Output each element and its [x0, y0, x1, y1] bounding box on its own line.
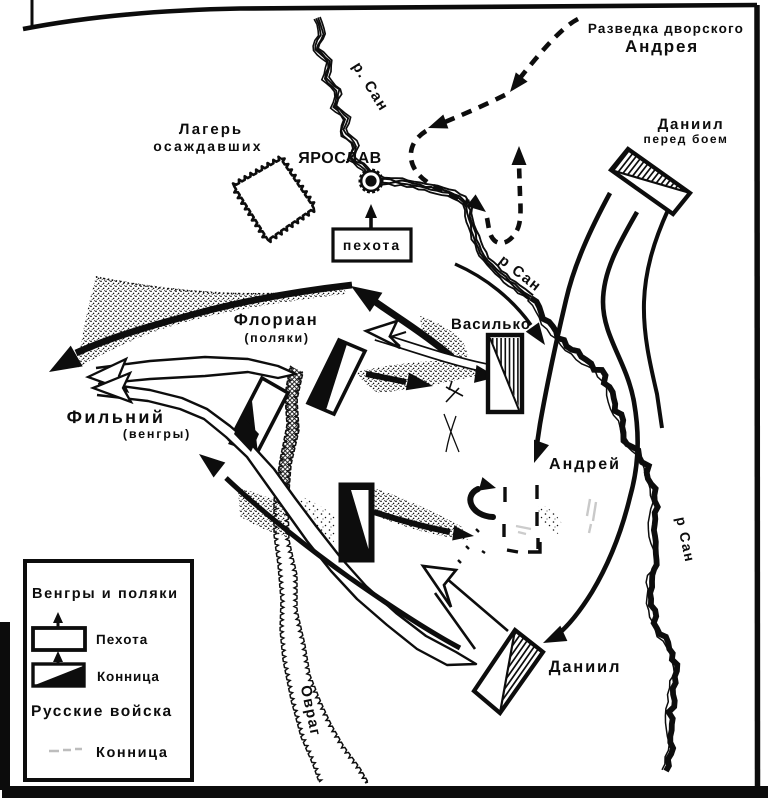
svg-text:Конница: Конница — [97, 669, 160, 684]
svg-text:осаждавших: осаждавших — [153, 138, 262, 154]
svg-text:перед боем: перед боем — [643, 132, 728, 146]
svg-text:(поляки): (поляки) — [244, 331, 309, 345]
svg-text:ЯРОСЛАВ: ЯРОСЛАВ — [298, 150, 381, 167]
svg-text:Русские войска: Русские войска — [31, 703, 173, 720]
svg-text:Андрей: Андрей — [549, 456, 621, 473]
svg-text:пехота: пехота — [343, 237, 401, 253]
svg-text:Пехота: Пехота — [96, 632, 148, 647]
svg-text:Разведка дворского: Разведка дворского — [588, 21, 744, 36]
svg-text:Даниил: Даниил — [658, 116, 725, 133]
svg-text:Флориан: Флориан — [234, 311, 319, 329]
svg-text:Василько: Василько — [451, 316, 531, 333]
svg-text:Лагерь: Лагерь — [179, 121, 243, 138]
svg-text:Конница: Конница — [96, 745, 169, 761]
svg-text:Андрея: Андрея — [625, 37, 699, 56]
svg-text:Венгры и поляки: Венгры и поляки — [32, 586, 179, 602]
svg-text:Фильний: Фильний — [67, 407, 166, 427]
svg-text:(венгры): (венгры) — [123, 427, 191, 441]
svg-text:Даниил: Даниил — [549, 658, 621, 676]
